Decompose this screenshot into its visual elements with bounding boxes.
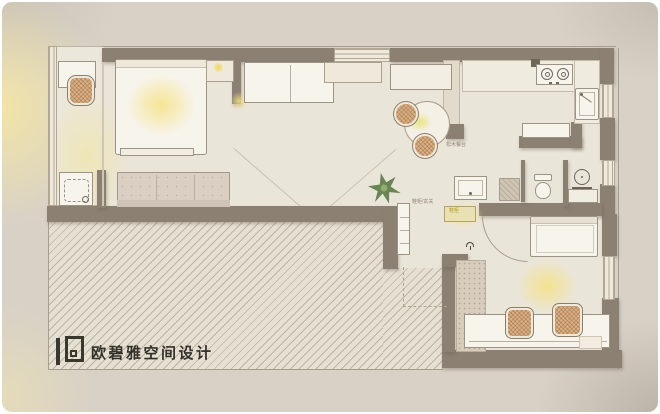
bed2-headboard: [531, 217, 597, 224]
bed1-light-glow: [126, 74, 196, 136]
wall-living-bottom: [47, 206, 385, 222]
wall-right-pier1: [600, 118, 615, 160]
shower-tray: [499, 178, 520, 201]
stove-knob: [549, 82, 552, 84]
wall-bedroom2-top: [479, 203, 602, 216]
console-bench: [120, 148, 194, 156]
toilet-bowl: [535, 182, 551, 199]
sofa-backrest: [117, 200, 230, 207]
rattan-chair: [68, 76, 94, 105]
rattan-chair: [506, 308, 533, 338]
kitchen-sink: [575, 88, 599, 120]
terrace-outline-bottom: [48, 369, 443, 370]
wall-right-pier2: [600, 184, 615, 216]
single-bed: [530, 216, 598, 257]
logo-inner-square: [70, 350, 77, 357]
washer-dial-icon: [82, 196, 89, 203]
entry-annotation: 鞋柜: [449, 209, 459, 214]
wall-step: [383, 206, 398, 269]
logo: [56, 336, 86, 366]
bathroom-vanity: [454, 176, 487, 200]
door-stop-stem: [470, 246, 471, 250]
window-right-2: [602, 160, 615, 186]
burner-icon: [541, 68, 553, 80]
studio-name: 欧碧雅空间设计: [91, 342, 214, 363]
wall-sofa: [244, 62, 334, 103]
balcony-divider-line: [102, 62, 104, 206]
window-top: [334, 48, 390, 62]
logo-square: [65, 336, 84, 362]
shelf-line: [400, 230, 409, 231]
vanity-faucet-icon: [469, 192, 472, 195]
washing-machine: [59, 172, 93, 206]
rattan-chair: [553, 304, 582, 336]
dining-annotation: 松木餐台: [446, 143, 466, 148]
shelf-line: [400, 243, 409, 244]
window-right-1: [602, 84, 614, 118]
unit-outline-top: [102, 46, 616, 47]
bath-partition-1: [521, 160, 525, 202]
layout-guide-dashed: [403, 267, 447, 307]
window-bedroom2: [603, 256, 615, 300]
console-table: [568, 189, 598, 203]
bed-headboard: [116, 60, 206, 68]
plan-card: 松木餐台 鞋柜/玄关 鞋柜: [2, 2, 658, 412]
peninsula-counter: [522, 123, 570, 138]
window-sill: [579, 336, 602, 349]
balcony-window: [48, 46, 57, 206]
hall-annotation: 鞋柜/玄关: [412, 200, 433, 205]
terrace-outline-left: [48, 222, 49, 370]
floor-plan-image: 松木餐台 鞋柜/玄关 鞋柜: [0, 0, 660, 414]
sideboard: [324, 62, 382, 83]
burner-icon: [557, 68, 569, 80]
rattan-chair: [413, 134, 437, 158]
shelf-line: [400, 217, 409, 218]
toilet-tank: [534, 174, 552, 181]
shoe-cabinet: [397, 203, 410, 255]
wall-bedroom2-right-upper: [602, 214, 617, 256]
logo-bar: [56, 338, 60, 365]
rattan-chair: [394, 102, 418, 126]
table-lamp-icon: [214, 63, 223, 72]
floor-lamp-base: [572, 187, 592, 189]
wall-bedroom2-bottom: [442, 350, 622, 368]
wall-right-corner: [600, 48, 614, 84]
peninsula-block: [571, 122, 582, 148]
floor-lamp-center: [581, 176, 583, 178]
cabinet: [390, 64, 452, 90]
sofa-seat-divider: [290, 65, 291, 102]
stove: [536, 64, 573, 85]
bed2-duvet: [536, 225, 594, 253]
stove-knob: [556, 82, 559, 84]
